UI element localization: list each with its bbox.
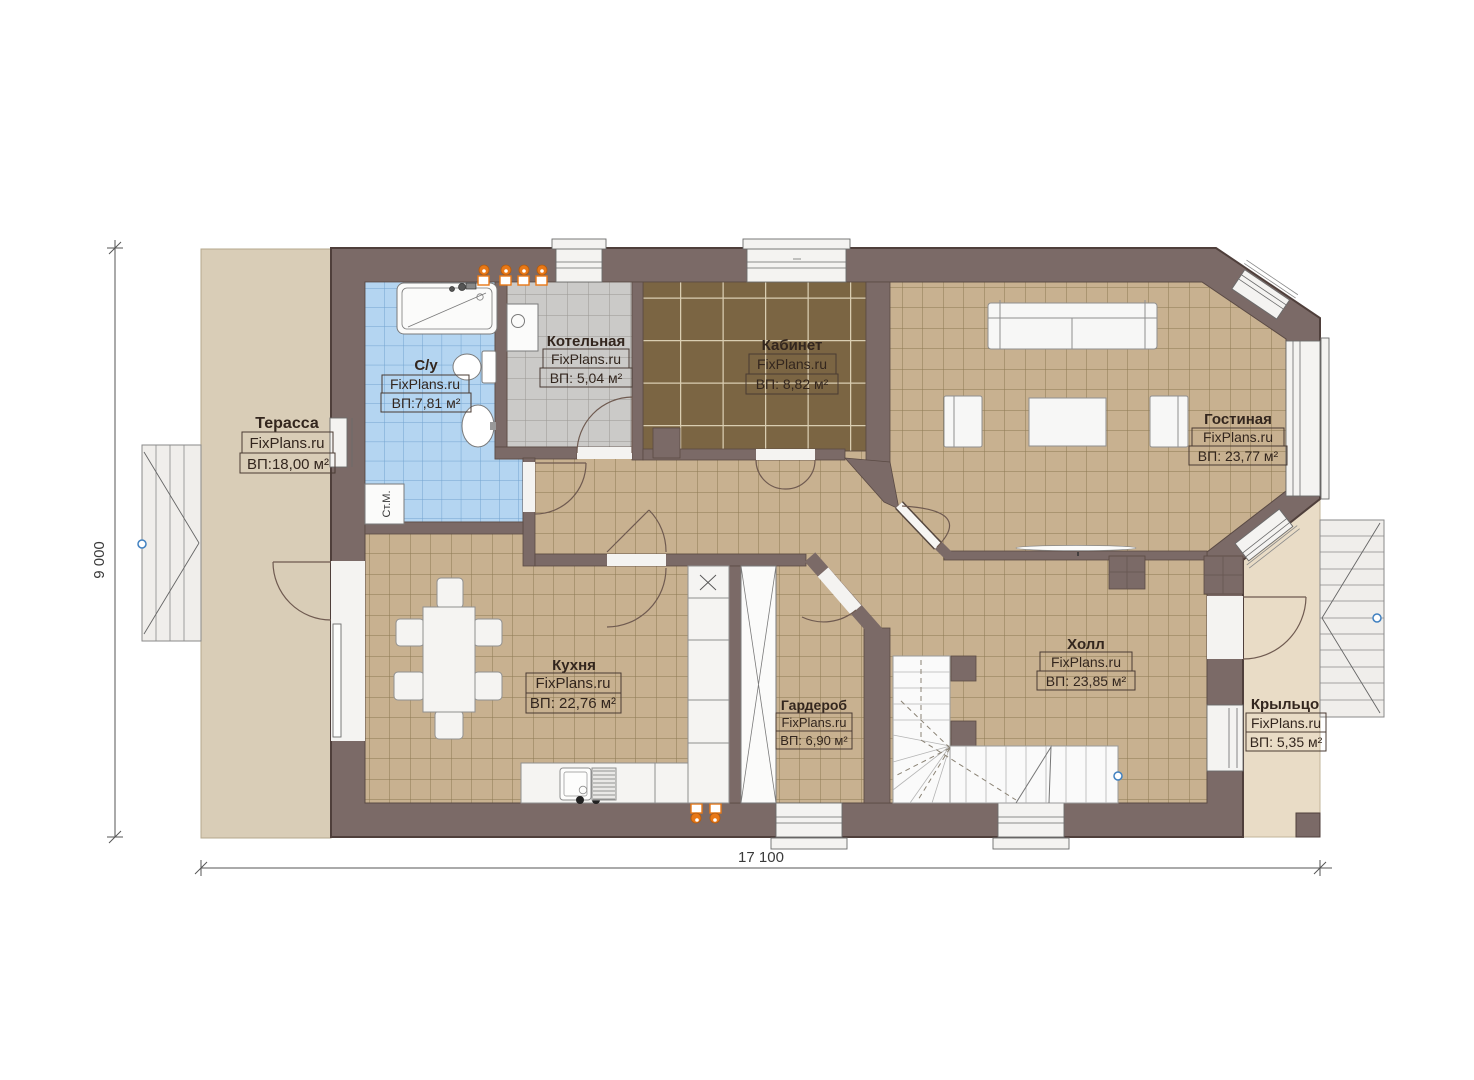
svg-text:FixPlans.ru: FixPlans.ru	[249, 435, 324, 452]
svg-text:FixPlans.ru: FixPlans.ru	[551, 351, 621, 367]
svg-text:Крыльцо: Крыльцо	[1251, 696, 1319, 713]
svg-text:ВП:7,81 м²: ВП:7,81 м²	[392, 395, 461, 411]
svg-text:ВП: 23,85 м²: ВП: 23,85 м²	[1046, 673, 1127, 689]
svg-text:FixPlans.ru: FixPlans.ru	[1051, 654, 1121, 670]
svg-text:ВП: 22,76 м²: ВП: 22,76 м²	[530, 695, 616, 712]
svg-text:FixPlans.ru: FixPlans.ru	[757, 356, 827, 372]
svg-text:Гостиная: Гостиная	[1204, 411, 1272, 428]
svg-text:ВП:18,00 м²: ВП:18,00 м²	[247, 456, 329, 473]
svg-text:FixPlans.ru: FixPlans.ru	[1203, 429, 1273, 445]
svg-text:Гардероб: Гардероб	[781, 697, 848, 713]
svg-text:С/у: С/у	[414, 357, 438, 374]
svg-text:Котельная: Котельная	[547, 333, 626, 350]
svg-text:ВП: 23,77 м²: ВП: 23,77 м²	[1198, 448, 1279, 464]
svg-text:FixPlans.ru: FixPlans.ru	[781, 715, 846, 730]
svg-text:17 100: 17 100	[738, 849, 784, 866]
svg-text:Ст.М.: Ст.М.	[381, 490, 393, 517]
svg-text:ВП: 6,90 м²: ВП: 6,90 м²	[780, 733, 848, 748]
svg-text:Терасса: Терасса	[255, 415, 319, 432]
svg-text:Кабинет: Кабинет	[762, 337, 823, 354]
svg-text:ВП: 5,35 м²: ВП: 5,35 м²	[1250, 734, 1323, 750]
svg-text:FixPlans.ru: FixPlans.ru	[1251, 715, 1321, 731]
svg-text:Холл: Холл	[1067, 636, 1105, 653]
svg-text:ВП: 5,04 м²: ВП: 5,04 м²	[550, 370, 623, 386]
svg-text:9 000: 9 000	[91, 541, 108, 579]
svg-text:ВП: 8,82 м²: ВП: 8,82 м²	[756, 376, 829, 392]
svg-text:Кухня: Кухня	[552, 657, 596, 674]
svg-text:FixPlans.ru: FixPlans.ru	[390, 376, 460, 392]
svg-text:FixPlans.ru: FixPlans.ru	[535, 675, 610, 692]
